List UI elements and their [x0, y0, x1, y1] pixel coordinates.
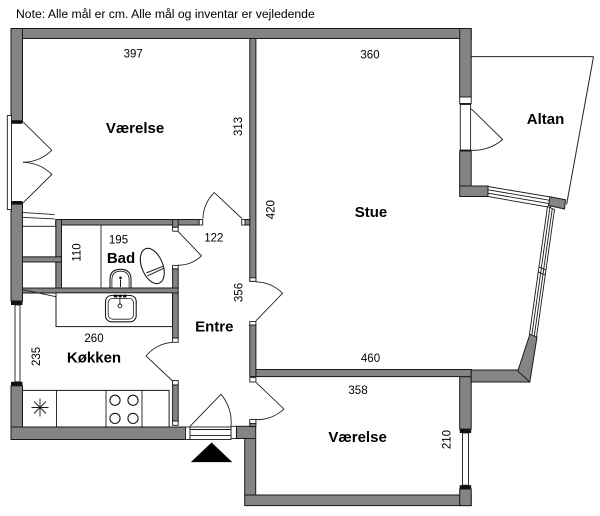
svg-text:313: 313 — [233, 117, 245, 136]
svg-text:Værelse: Værelse — [328, 429, 386, 446]
svg-text:Note: Alle mål er cm. Alle mål: Note: Alle mål er cm. Alle mål og invent… — [16, 7, 315, 21]
svg-text:420: 420 — [265, 200, 277, 219]
svg-text:360: 360 — [360, 49, 379, 61]
svg-text:Køkken: Køkken — [67, 349, 121, 366]
svg-text:110: 110 — [72, 243, 84, 261]
svg-text:Entre: Entre — [195, 319, 233, 336]
svg-text:Bad: Bad — [107, 250, 135, 267]
svg-text:Stue: Stue — [355, 204, 388, 221]
svg-text:Værelse: Værelse — [106, 120, 164, 137]
svg-text:260: 260 — [84, 333, 103, 345]
svg-text:397: 397 — [124, 49, 143, 61]
svg-text:358: 358 — [348, 385, 367, 397]
svg-text:356: 356 — [233, 283, 245, 302]
svg-text:210: 210 — [442, 430, 454, 449]
svg-text:195: 195 — [109, 235, 128, 247]
svg-text:Altan: Altan — [527, 111, 565, 128]
svg-text:122: 122 — [204, 233, 223, 245]
svg-text:460: 460 — [361, 353, 380, 365]
svg-text:235: 235 — [31, 347, 43, 366]
